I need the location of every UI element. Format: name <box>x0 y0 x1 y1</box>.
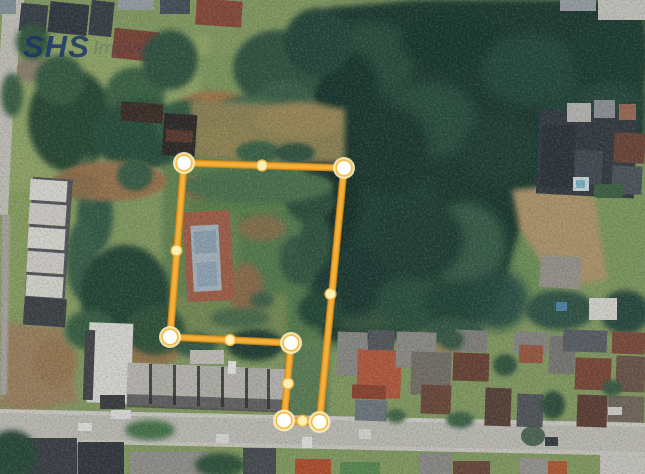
svg-text:SHS: SHS <box>23 29 90 64</box>
svg-text:Imóveis: Imóveis <box>93 38 164 59</box>
